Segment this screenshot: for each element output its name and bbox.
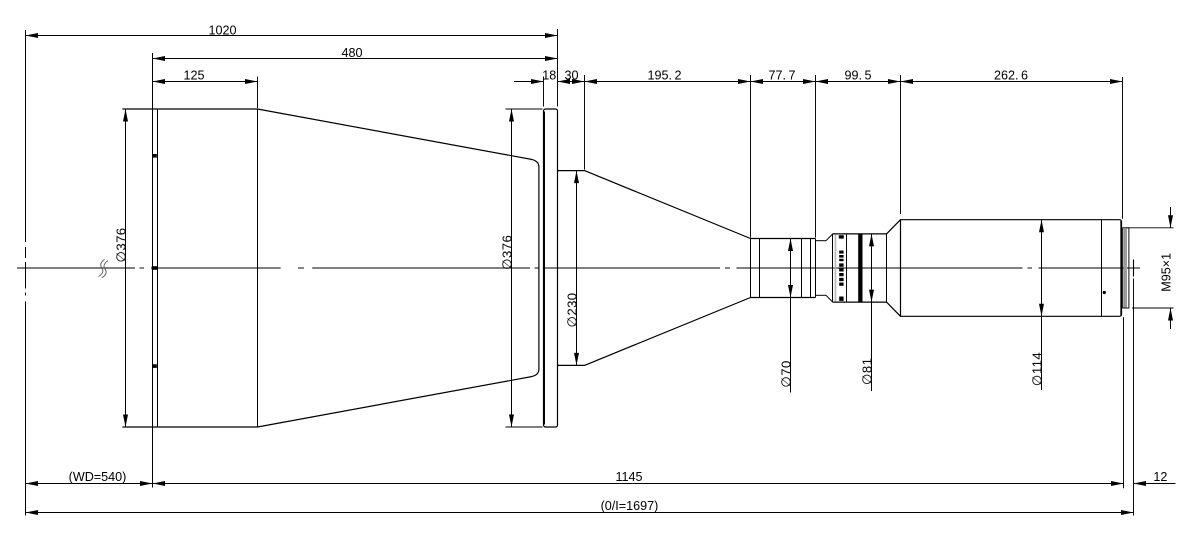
svg-text:∅81: ∅81 xyxy=(860,358,875,385)
svg-text:18: 18 xyxy=(542,69,556,83)
svg-text:∅376: ∅376 xyxy=(500,235,515,270)
svg-text:195. 2: 195. 2 xyxy=(647,69,681,83)
svg-text:125: 125 xyxy=(183,69,204,83)
svg-text:30: 30 xyxy=(564,69,578,83)
svg-text:99. 5: 99. 5 xyxy=(844,69,871,83)
svg-text:∅230: ∅230 xyxy=(565,292,580,327)
svg-text:77. 7: 77. 7 xyxy=(768,69,795,83)
svg-text:∅114: ∅114 xyxy=(1030,352,1045,386)
svg-text:∅376: ∅376 xyxy=(114,227,129,262)
svg-text:262. 6: 262. 6 xyxy=(994,69,1028,83)
svg-text:∅70: ∅70 xyxy=(779,360,794,387)
svg-text:(WD=540): (WD=540) xyxy=(69,470,127,484)
svg-text:12: 12 xyxy=(1153,470,1167,484)
svg-text:480: 480 xyxy=(341,46,362,60)
svg-text:(0/I=1697): (0/I=1697) xyxy=(601,499,659,513)
svg-text:M95×1: M95×1 xyxy=(1160,253,1174,292)
svg-text:1145: 1145 xyxy=(615,470,642,484)
svg-text:1020: 1020 xyxy=(208,23,236,37)
